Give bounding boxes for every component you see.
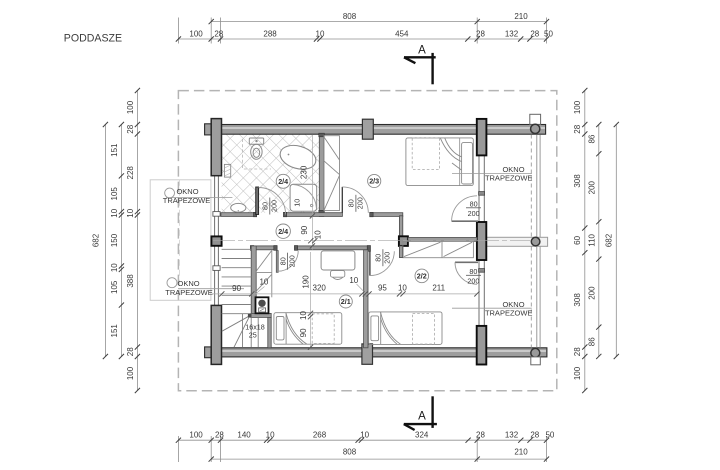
svg-text:110: 110 [587, 233, 596, 246]
svg-text:150: 150 [110, 233, 119, 247]
svg-text:90: 90 [232, 284, 241, 293]
svg-text:320: 320 [313, 284, 327, 293]
svg-text:268: 268 [313, 431, 327, 440]
svg-text:50: 50 [544, 29, 553, 38]
svg-text:200: 200 [587, 286, 596, 300]
svg-text:100: 100 [189, 431, 203, 440]
svg-text:132: 132 [505, 431, 519, 440]
svg-text:200: 200 [587, 180, 596, 194]
svg-text:100: 100 [126, 366, 135, 380]
svg-text:10: 10 [314, 230, 323, 239]
svg-text:100: 100 [573, 366, 582, 380]
svg-text:OKNO: OKNO [176, 187, 198, 196]
svg-text:80: 80 [374, 254, 383, 262]
svg-text:210: 210 [514, 12, 528, 21]
svg-text:808: 808 [343, 447, 357, 456]
svg-text:10: 10 [110, 208, 119, 217]
svg-text:60: 60 [573, 235, 582, 244]
svg-text:86: 86 [587, 337, 596, 346]
svg-text:151: 151 [110, 324, 119, 338]
svg-text:190: 190 [301, 275, 310, 289]
svg-text:10: 10 [126, 208, 135, 217]
svg-text:308: 308 [573, 174, 582, 188]
svg-text:28: 28 [530, 29, 539, 38]
svg-text:A: A [418, 411, 426, 423]
svg-text:80: 80 [470, 199, 478, 208]
svg-text:28: 28 [215, 431, 224, 440]
svg-text:200: 200 [468, 209, 480, 218]
svg-text:90: 90 [300, 225, 309, 234]
svg-text:28: 28 [476, 29, 485, 38]
svg-text:308: 308 [573, 293, 582, 307]
svg-text:10: 10 [110, 263, 119, 272]
svg-text:230: 230 [300, 165, 309, 179]
svg-text:28: 28 [530, 431, 539, 440]
svg-text:90: 90 [299, 328, 308, 337]
svg-text:210: 210 [514, 447, 528, 456]
svg-text:TRAPEZOWE: TRAPEZOWE [485, 174, 533, 183]
svg-text:25: 25 [249, 330, 257, 339]
svg-text:132: 132 [505, 29, 519, 38]
svg-text:100: 100 [126, 100, 135, 114]
svg-text:80: 80 [347, 199, 356, 207]
svg-text:80: 80 [278, 257, 287, 265]
svg-text:200: 200 [467, 276, 479, 285]
svg-text:10: 10 [349, 276, 358, 285]
svg-text:105: 105 [110, 187, 119, 201]
svg-text:288: 288 [263, 29, 277, 38]
svg-text:200: 200 [287, 255, 296, 267]
svg-text:682: 682 [605, 233, 614, 247]
svg-text:388: 388 [126, 274, 135, 288]
svg-text:OKNO: OKNO [178, 279, 200, 288]
svg-text:200: 200 [356, 197, 365, 209]
svg-text:TRAPEZOWE: TRAPEZOWE [165, 288, 213, 297]
svg-text:200: 200 [270, 200, 279, 212]
svg-text:OKNO: OKNO [502, 300, 524, 309]
svg-text:50: 50 [545, 431, 554, 440]
svg-text:454: 454 [395, 29, 409, 38]
svg-text:2/4: 2/4 [278, 227, 288, 236]
svg-text:10: 10 [266, 431, 275, 440]
svg-text:105: 105 [110, 280, 119, 294]
svg-text:A: A [418, 45, 426, 57]
svg-text:2/3: 2/3 [369, 177, 379, 186]
svg-text:10: 10 [398, 284, 407, 293]
svg-text:2/1: 2/1 [341, 297, 351, 306]
svg-text:211: 211 [432, 284, 445, 293]
svg-text:100: 100 [573, 100, 582, 114]
svg-text:228: 228 [126, 166, 135, 180]
svg-text:80: 80 [261, 202, 270, 210]
svg-text:28: 28 [573, 347, 582, 356]
svg-text:TRAPEZOWE: TRAPEZOWE [485, 309, 533, 318]
svg-text:2/4: 2/4 [278, 177, 288, 186]
svg-text:10: 10 [299, 311, 308, 320]
svg-text:86: 86 [587, 134, 596, 143]
svg-text:808: 808 [343, 12, 357, 21]
svg-text:28: 28 [126, 124, 135, 133]
svg-text:200: 200 [383, 252, 392, 264]
svg-text:10: 10 [360, 431, 369, 440]
svg-text:PODDASZE: PODDASZE [64, 32, 122, 44]
svg-text:28: 28 [573, 124, 582, 133]
svg-text:28: 28 [476, 431, 485, 440]
svg-text:140: 140 [237, 431, 251, 440]
svg-text:80: 80 [469, 267, 477, 276]
svg-text:151: 151 [110, 143, 119, 157]
svg-text:682: 682 [92, 233, 101, 247]
svg-text:28: 28 [214, 29, 223, 38]
svg-text:28: 28 [126, 347, 135, 356]
svg-text:2/2: 2/2 [417, 272, 427, 281]
svg-text:10: 10 [292, 199, 301, 207]
svg-text:10: 10 [259, 277, 268, 286]
svg-text:324: 324 [415, 431, 429, 440]
svg-text:10: 10 [316, 29, 325, 38]
svg-text:95: 95 [378, 284, 387, 293]
svg-text:100: 100 [189, 29, 203, 38]
